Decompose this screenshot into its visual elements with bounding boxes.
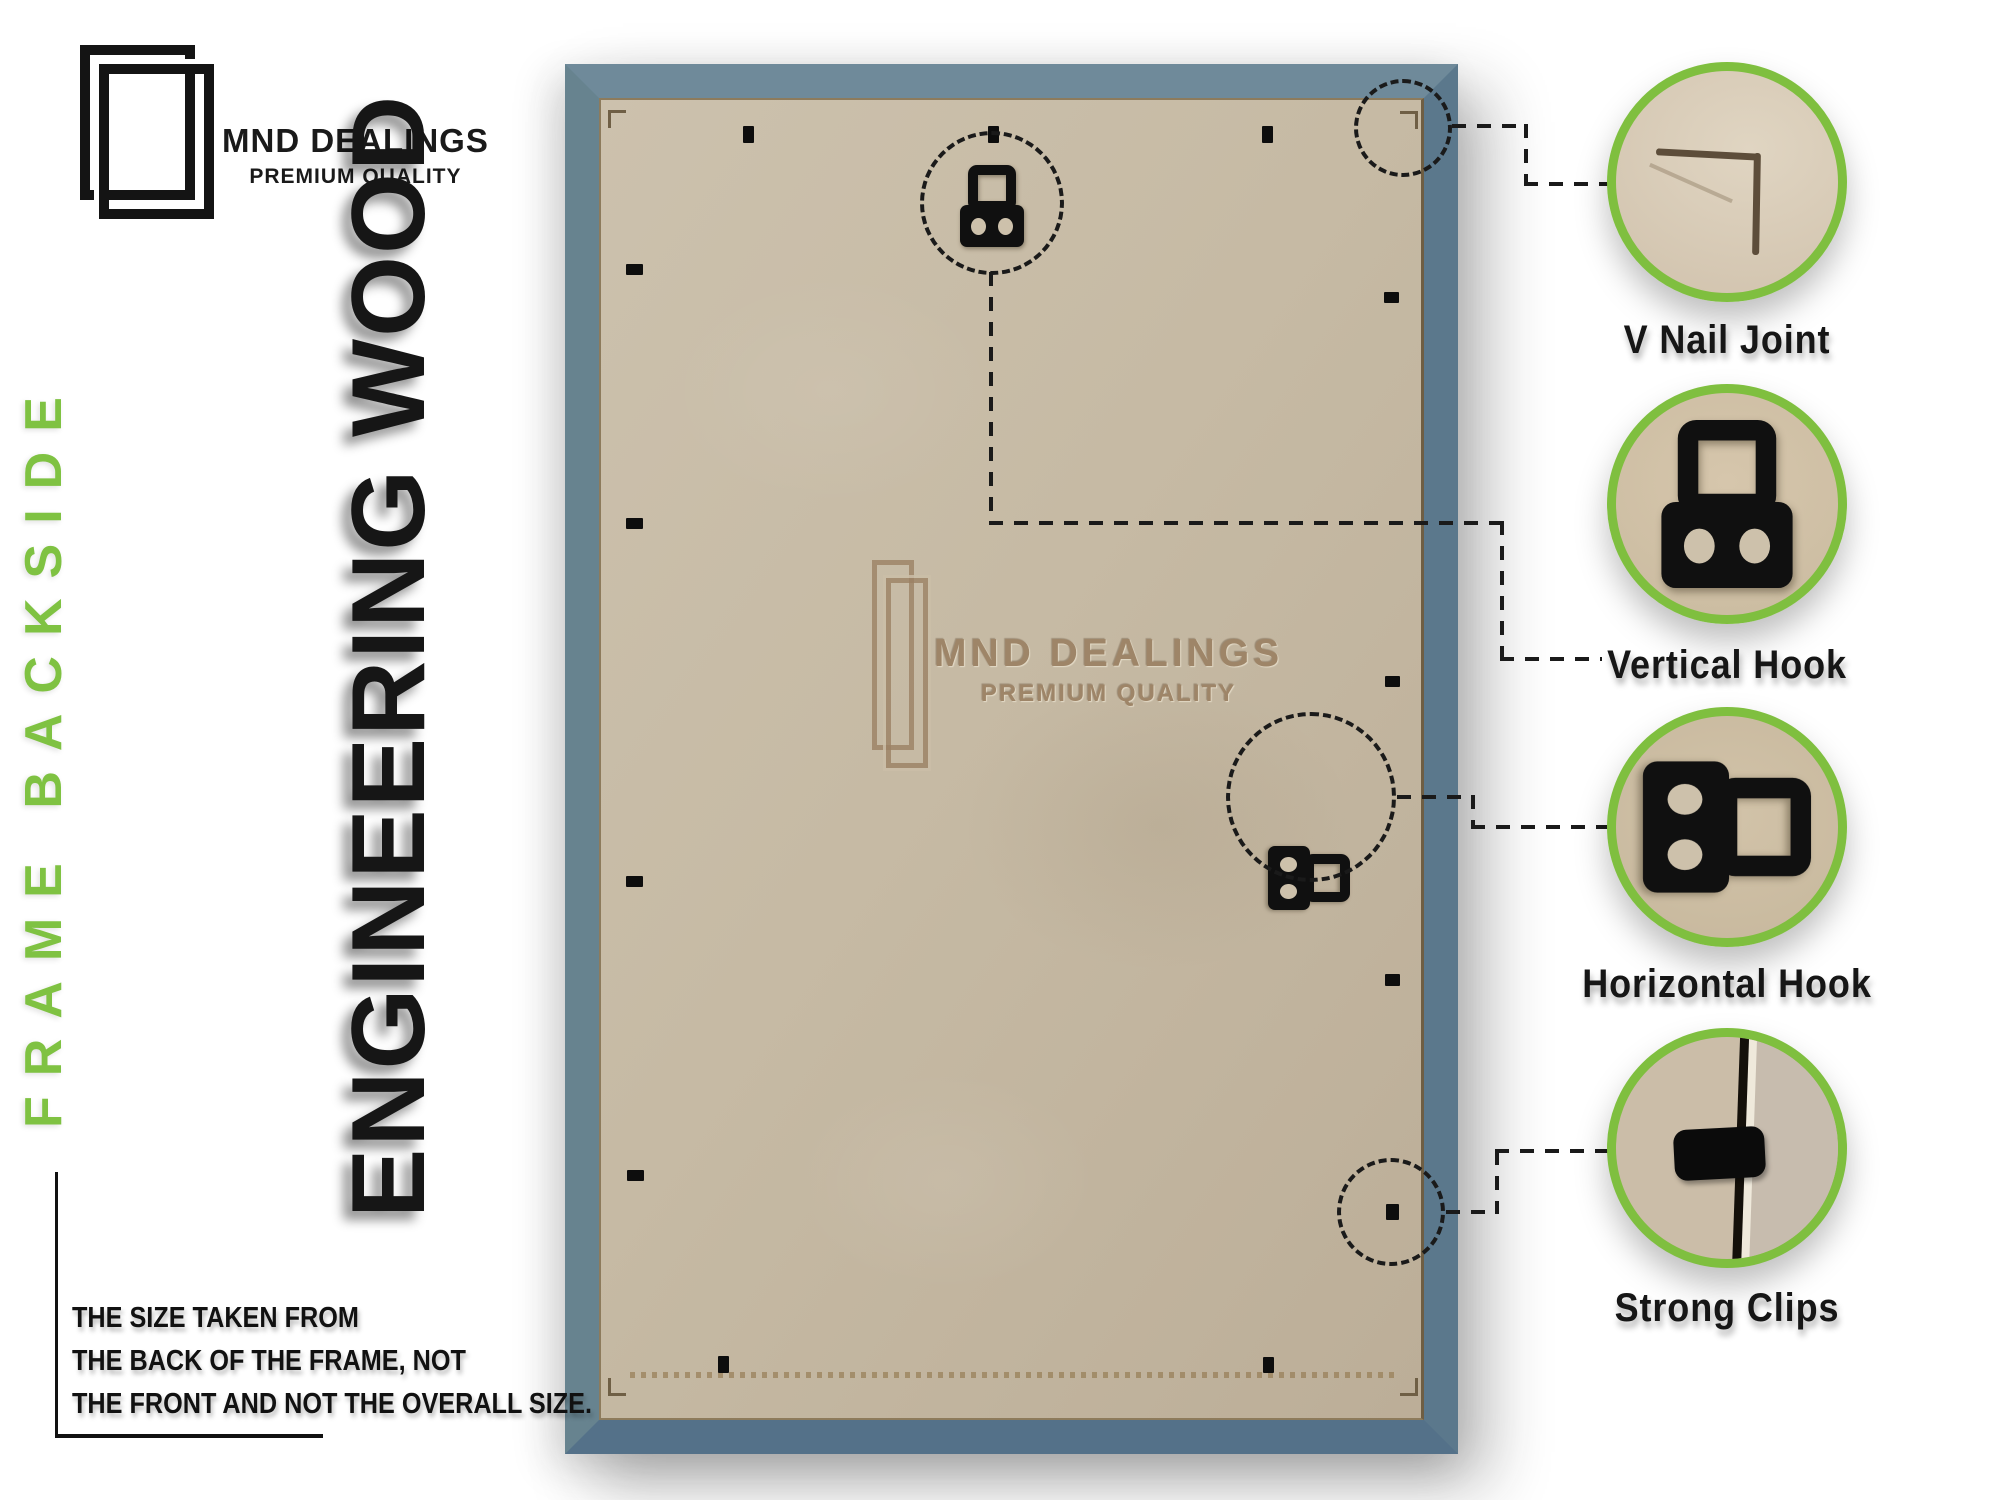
watermark-text: MND DEALINGS PREMIUM QUALITY [934, 632, 1283, 708]
highlight-circle-strong-clips [1337, 1158, 1445, 1266]
clip [1263, 1357, 1274, 1373]
horizontal-hook-photo [1643, 761, 1811, 892]
logo-frame-rect-front [99, 64, 214, 219]
connector-horizontal-hook [1471, 825, 1609, 829]
watermark-tagline: PREMIUM QUALITY [934, 680, 1283, 708]
note-bracket-vertical-line [55, 1172, 58, 1436]
callout-circle-v-nail-joint [1607, 62, 1847, 302]
connector-v-nail-joint [1524, 182, 1609, 186]
connector-vertical-hook [1500, 521, 1504, 661]
hook-hole [1739, 529, 1770, 564]
hook-hole [1684, 529, 1715, 564]
connector-strong-clips [1495, 1149, 1609, 1153]
connector-vertical-hook [989, 521, 1504, 525]
highlight-circle-v-nail-joint [1354, 79, 1452, 177]
strong-clip-photo [1672, 1126, 1766, 1182]
clip [1384, 292, 1399, 303]
corner-mark-bottom-left [608, 1378, 626, 1396]
hook-hole [1668, 839, 1703, 870]
hook-ring [1678, 420, 1776, 514]
hook-hole [1280, 884, 1297, 899]
callout-circle-horizontal-hook [1607, 707, 1847, 947]
clip [626, 518, 643, 529]
v-nail-crack [1649, 163, 1733, 203]
product-infographic: MND DEALINGS PREMIUM QUALITY FRAME BACKS… [0, 0, 2000, 1500]
connector-v-nail-joint [1524, 124, 1528, 186]
callout-label-strong-clips: Strong Clips [1565, 1286, 1889, 1331]
hook-ring [1717, 778, 1811, 876]
clip [1385, 974, 1400, 986]
clip [1262, 126, 1273, 143]
watermark-logo-rect-front [886, 578, 928, 768]
size-note-line-2: THE BACK OF THE FRAME, NOT [72, 1340, 592, 1383]
size-note: THE SIZE TAKEN FROM THE BACK OF THE FRAM… [72, 1297, 592, 1426]
highlight-circle-vertical-hook [920, 131, 1064, 275]
bottom-serration [630, 1372, 1396, 1378]
v-nail-groove-vertical [1752, 153, 1761, 255]
clip [718, 1356, 729, 1373]
embossed-watermark: MND DEALINGS PREMIUM QUALITY [872, 556, 1242, 771]
clip [1385, 676, 1400, 687]
clip [626, 264, 643, 275]
frame-backside-vertical-label: FRAME BACKSIDE [14, 380, 100, 1128]
connector-horizontal-hook [1397, 795, 1475, 799]
connector-strong-clips [1446, 1210, 1499, 1214]
clip [626, 876, 643, 887]
v-nail-groove-horizontal [1656, 148, 1760, 160]
size-note-line-1: THE SIZE TAKEN FROM [72, 1297, 592, 1340]
watermark-name: MND DEALINGS [934, 632, 1283, 676]
connector-horizontal-hook [1471, 795, 1475, 829]
vertical-hook-photo [1661, 420, 1792, 588]
note-bracket-horizontal-line [55, 1434, 323, 1438]
callout-label-vertical-hook: Vertical Hook [1565, 643, 1889, 688]
size-note-line-3: THE FRONT AND NOT THE OVERALL SIZE. [72, 1383, 592, 1426]
hook-plate [1643, 761, 1729, 892]
connector-strong-clips [1495, 1151, 1499, 1214]
engineering-wood-vertical-label: ENGINEERING WOOD [330, 198, 478, 1218]
callout-label-v-nail-joint: V Nail Joint [1565, 318, 1889, 363]
hook-hole [1668, 784, 1703, 815]
v-nail-shadow-wedge [1608, 223, 1720, 302]
highlight-circle-horizontal-hook [1226, 712, 1396, 882]
corner-mark-top-left [608, 110, 626, 128]
corner-mark-bottom-right [1400, 1378, 1418, 1396]
connector-vertical-hook [989, 272, 993, 525]
clip [627, 1170, 644, 1181]
callout-label-horizontal-hook: Horizontal Hook [1565, 962, 1889, 1007]
hook-plate [1661, 502, 1792, 588]
connector-v-nail-joint [1452, 124, 1528, 128]
callout-circle-vertical-hook [1607, 384, 1847, 624]
callout-circle-strong-clips [1607, 1028, 1847, 1268]
clip [743, 126, 754, 143]
